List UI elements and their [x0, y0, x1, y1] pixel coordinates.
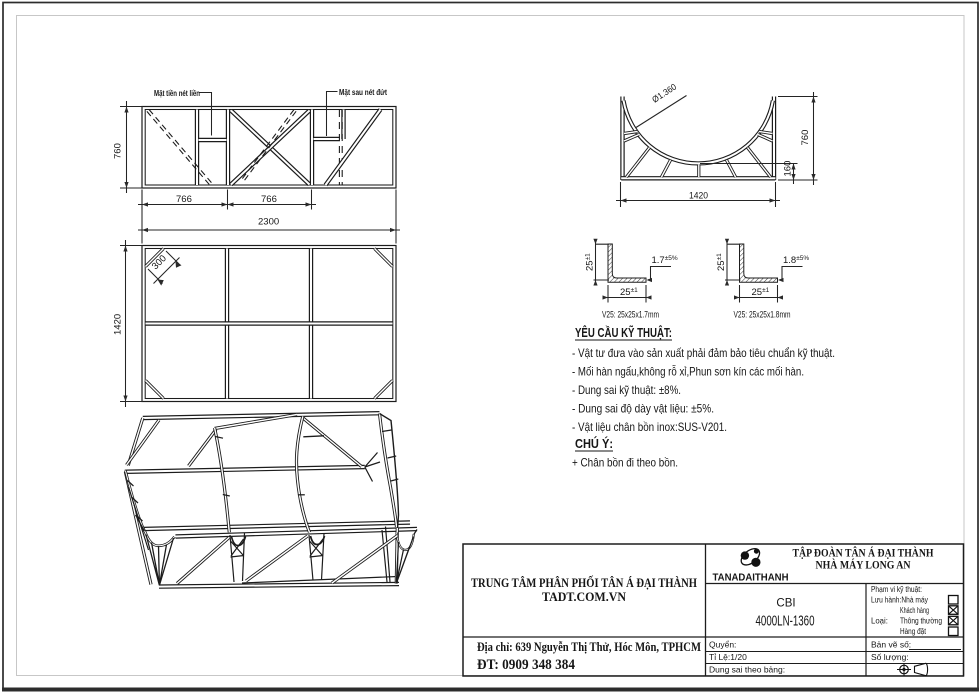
svg-text:Loại:: Loại: [871, 617, 888, 626]
svg-text:2300: 2300 [258, 217, 279, 228]
svg-text:766: 766 [176, 194, 192, 205]
svg-text:Bản vẽ số:: Bản vẽ số: [871, 640, 911, 650]
svg-text:760: 760 [800, 130, 811, 146]
svg-text:Dung sai theo bảng:: Dung sai theo bảng: [709, 665, 785, 675]
svg-text:V25: 25x25x1.7mm: V25: 25x25x1.7mm [602, 310, 659, 321]
svg-text:Địa chỉ: 639 Nguyễn Thị Thử, H: Địa chỉ: 639 Nguyễn Thị Thử, Hóc Môn, TP… [477, 640, 701, 654]
svg-text:760: 760 [113, 143, 124, 159]
svg-text:TANADAITHANH: TANADAITHANH [713, 572, 789, 584]
svg-text:4000LN-1360: 4000LN-1360 [756, 614, 815, 630]
svg-text:Lưu hành:Nhà máy: Lưu hành:Nhà máy [871, 596, 928, 605]
svg-text:+ Chân bồn đi theo bồn.: + Chân bồn đi theo bồn. [572, 456, 678, 470]
svg-text:Thông thường: Thông thường [900, 617, 942, 626]
svg-text:766: 766 [261, 194, 277, 205]
svg-text:ĐT: 0909 348 384: ĐT: 0909 348 384 [477, 657, 575, 673]
svg-text:- Dung sai độ dày vật liệu: ±5: - Dung sai độ dày vật liệu: ±5%. [572, 402, 714, 416]
svg-text:Mặt tiền nét liền: Mặt tiền nét liền [154, 89, 200, 98]
svg-text:CBI: CBI [776, 598, 795, 610]
svg-text:- Vật tư đưa vào sản xuất phải: - Vật tư đưa vào sản xuất phải đảm bảo t… [572, 346, 835, 360]
svg-text:V25: 25x25x1.8mm: V25: 25x25x1.8mm [734, 310, 791, 321]
svg-text:Mặt sau nét đứt: Mặt sau nét đứt [339, 88, 387, 97]
svg-text:- Dung sai kỹ thuật: ±8%.: - Dung sai kỹ thuật: ±8%. [572, 383, 681, 397]
svg-text:160: 160 [783, 161, 794, 177]
svg-text:TRUNG TÂM PHÂN PHỐI TÂN Á ĐẠI: TRUNG TÂM PHÂN PHỐI TÂN Á ĐẠI THÀNH [471, 575, 697, 590]
svg-text:Quyển:: Quyển: [709, 640, 736, 650]
svg-text:TADT.COM.VN: TADT.COM.VN [542, 590, 626, 604]
svg-text:Phạm vi kỹ thuật:: Phạm vi kỹ thuật: [871, 585, 922, 594]
svg-text:CHÚ Ý:: CHÚ Ý: [575, 436, 613, 451]
svg-text:NHÀ MÁY LONG AN: NHÀ MÁY LONG AN [816, 558, 912, 572]
svg-text:TẬP ĐOÀN TÂN Á ĐẠI THÀNH: TẬP ĐOÀN TÂN Á ĐẠI THÀNH [793, 546, 934, 560]
svg-text:Khách hàng: Khách hàng [900, 606, 929, 615]
svg-text:1420: 1420 [113, 314, 124, 335]
svg-text:YÊU CẦU KỸ THUẬT:: YÊU CẦU KỸ THUẬT: [575, 325, 672, 340]
svg-text:- Vật liệu chân bồn inox:SUS-V: - Vật liệu chân bồn inox:SUS-V201. [572, 420, 727, 434]
svg-text:Tỉ Lệ:1/20: Tỉ Lệ:1/20 [709, 652, 747, 662]
svg-text:- Mối hàn ngấu,không rỗ xỉ,Phu: - Mối hàn ngấu,không rỗ xỉ,Phun sơn kín … [572, 364, 804, 379]
svg-text:Số lượng:: Số lượng: [871, 652, 909, 662]
svg-text:1420: 1420 [689, 191, 708, 202]
svg-text:Hàng đặt: Hàng đặt [900, 627, 927, 636]
